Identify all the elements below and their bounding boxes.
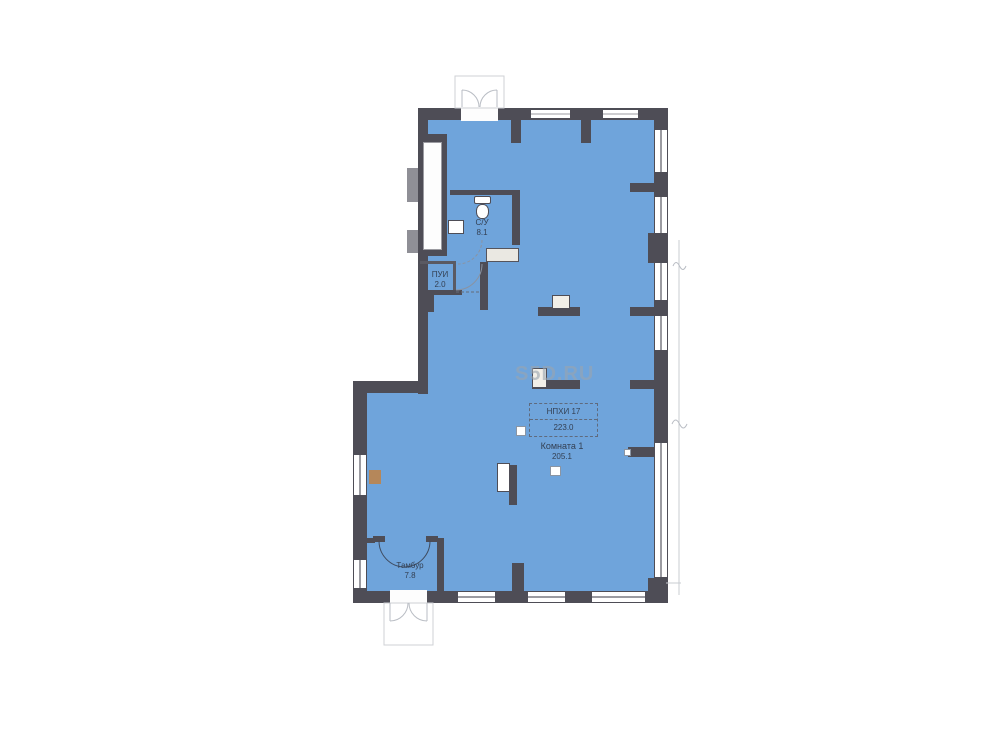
wall-stub-right-4	[628, 447, 654, 457]
wall-right-pier	[648, 233, 668, 263]
wall-stub-right-3	[630, 380, 654, 389]
window-bottom-3	[592, 592, 645, 602]
bottom-door-swing	[390, 603, 427, 621]
wall-block-left	[418, 295, 434, 312]
unit-info-box: НПХИ 17 223.0	[529, 403, 598, 437]
adjacent-wall-stub	[407, 168, 418, 202]
partition-wall	[480, 262, 488, 310]
room-label-pui: ПУИ 2.0	[420, 270, 460, 289]
column-3-shaft	[509, 465, 517, 505]
pui-wall-top	[420, 261, 456, 264]
dimension-break-2	[672, 420, 687, 428]
wall-corner-block	[648, 578, 664, 592]
window-wall-pane	[423, 142, 442, 250]
unit-info-area: 223.0	[530, 420, 597, 435]
room-label-tambour-area: 7.8	[385, 571, 435, 581]
window-top-2	[603, 110, 638, 118]
pilaster-2	[581, 120, 591, 143]
room-label-main-area: 205.1	[527, 452, 597, 462]
plan-marker-2	[550, 466, 561, 476]
top-door-swing	[462, 90, 497, 107]
window-bottom-2	[528, 592, 565, 602]
window-right-2	[655, 197, 667, 233]
wall-stub-right-1	[630, 183, 654, 192]
room-label-main-name: Комната 1	[527, 441, 597, 452]
watermark: S5D.RU	[515, 363, 594, 386]
toilet-icon	[476, 204, 489, 219]
bottom-vestibule-outline	[384, 603, 433, 645]
wall-stub-right-2	[630, 307, 654, 316]
room-label-wc: С/У 8.1	[462, 218, 502, 237]
wc-wall-right	[512, 190, 520, 245]
entrance-top-opening	[461, 107, 498, 121]
radiator-block	[369, 470, 381, 484]
tambour-partition	[437, 538, 444, 591]
room-label-pui-area: 2.0	[420, 280, 460, 290]
plan-marker-3	[624, 449, 631, 456]
wall-stub-bottom	[512, 563, 524, 591]
window-top-1	[531, 110, 570, 118]
window-left-2	[354, 560, 366, 588]
counter	[486, 248, 519, 262]
floor-plan-page: С/У 8.1 ПУИ 2.0 НПХИ 17 223.0 Комната 1 …	[0, 0, 1000, 750]
wall-step	[353, 381, 428, 393]
window-right-1	[655, 130, 667, 172]
room-label-tambour: Тамбур 7.8	[385, 561, 435, 580]
unit-info-id: НПХИ 17	[530, 404, 597, 420]
tambour-jamb-left	[373, 536, 385, 542]
window-left-1	[354, 455, 366, 495]
entrance-bottom-opening	[390, 590, 427, 604]
room-label-pui-name: ПУИ	[420, 270, 460, 280]
adjacent-wall-stub	[407, 230, 418, 253]
top-vestibule-outline	[455, 76, 504, 108]
room-label-main: Комната 1 205.1	[527, 441, 597, 461]
window-right-5	[655, 443, 667, 577]
plan-marker-1	[516, 426, 526, 436]
window-right-4	[655, 316, 667, 350]
room-label-wc-name: С/У	[462, 218, 502, 228]
room-label-wc-area: 8.1	[462, 228, 502, 238]
toilet-icon	[474, 196, 491, 204]
window-right-3	[655, 263, 667, 300]
pilaster-1	[511, 120, 521, 143]
room-label-tambour-name: Тамбур	[385, 561, 435, 571]
tambour-jamb-right	[426, 536, 438, 542]
window-bottom-1	[458, 592, 495, 602]
column-1	[552, 295, 570, 309]
wc-wall-top	[450, 190, 519, 195]
dimension-break-1	[673, 263, 686, 270]
